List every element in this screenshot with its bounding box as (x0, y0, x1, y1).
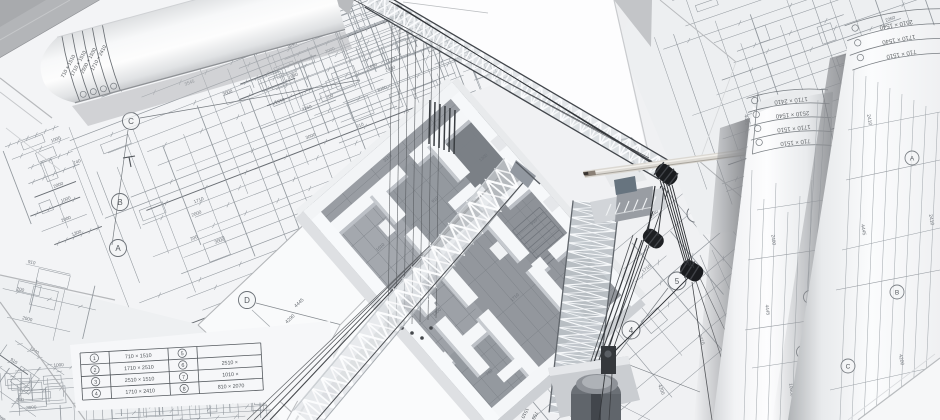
svg-text:C: C (846, 363, 851, 370)
svg-text:A: A (910, 155, 915, 162)
svg-text:8: 8 (183, 386, 186, 392)
svg-text:C: C (128, 117, 134, 126)
svg-text:3: 3 (94, 380, 97, 386)
svg-text:2: 2 (93, 368, 96, 374)
svg-text:B: B (895, 289, 899, 296)
svg-text:1010 ×: 1010 × (222, 372, 239, 379)
svg-text:4: 4 (95, 391, 98, 397)
svg-text:5: 5 (181, 351, 184, 357)
svg-text:7: 7 (182, 375, 185, 381)
svg-text:6: 6 (181, 363, 184, 369)
svg-text:A: A (115, 244, 121, 253)
svg-text:1: 1 (93, 356, 96, 362)
svg-text:1000: 1000 (53, 362, 64, 368)
svg-text:2510 ×: 2510 × (221, 360, 238, 367)
svg-text:5: 5 (675, 277, 680, 286)
svg-text:D: D (244, 296, 250, 305)
